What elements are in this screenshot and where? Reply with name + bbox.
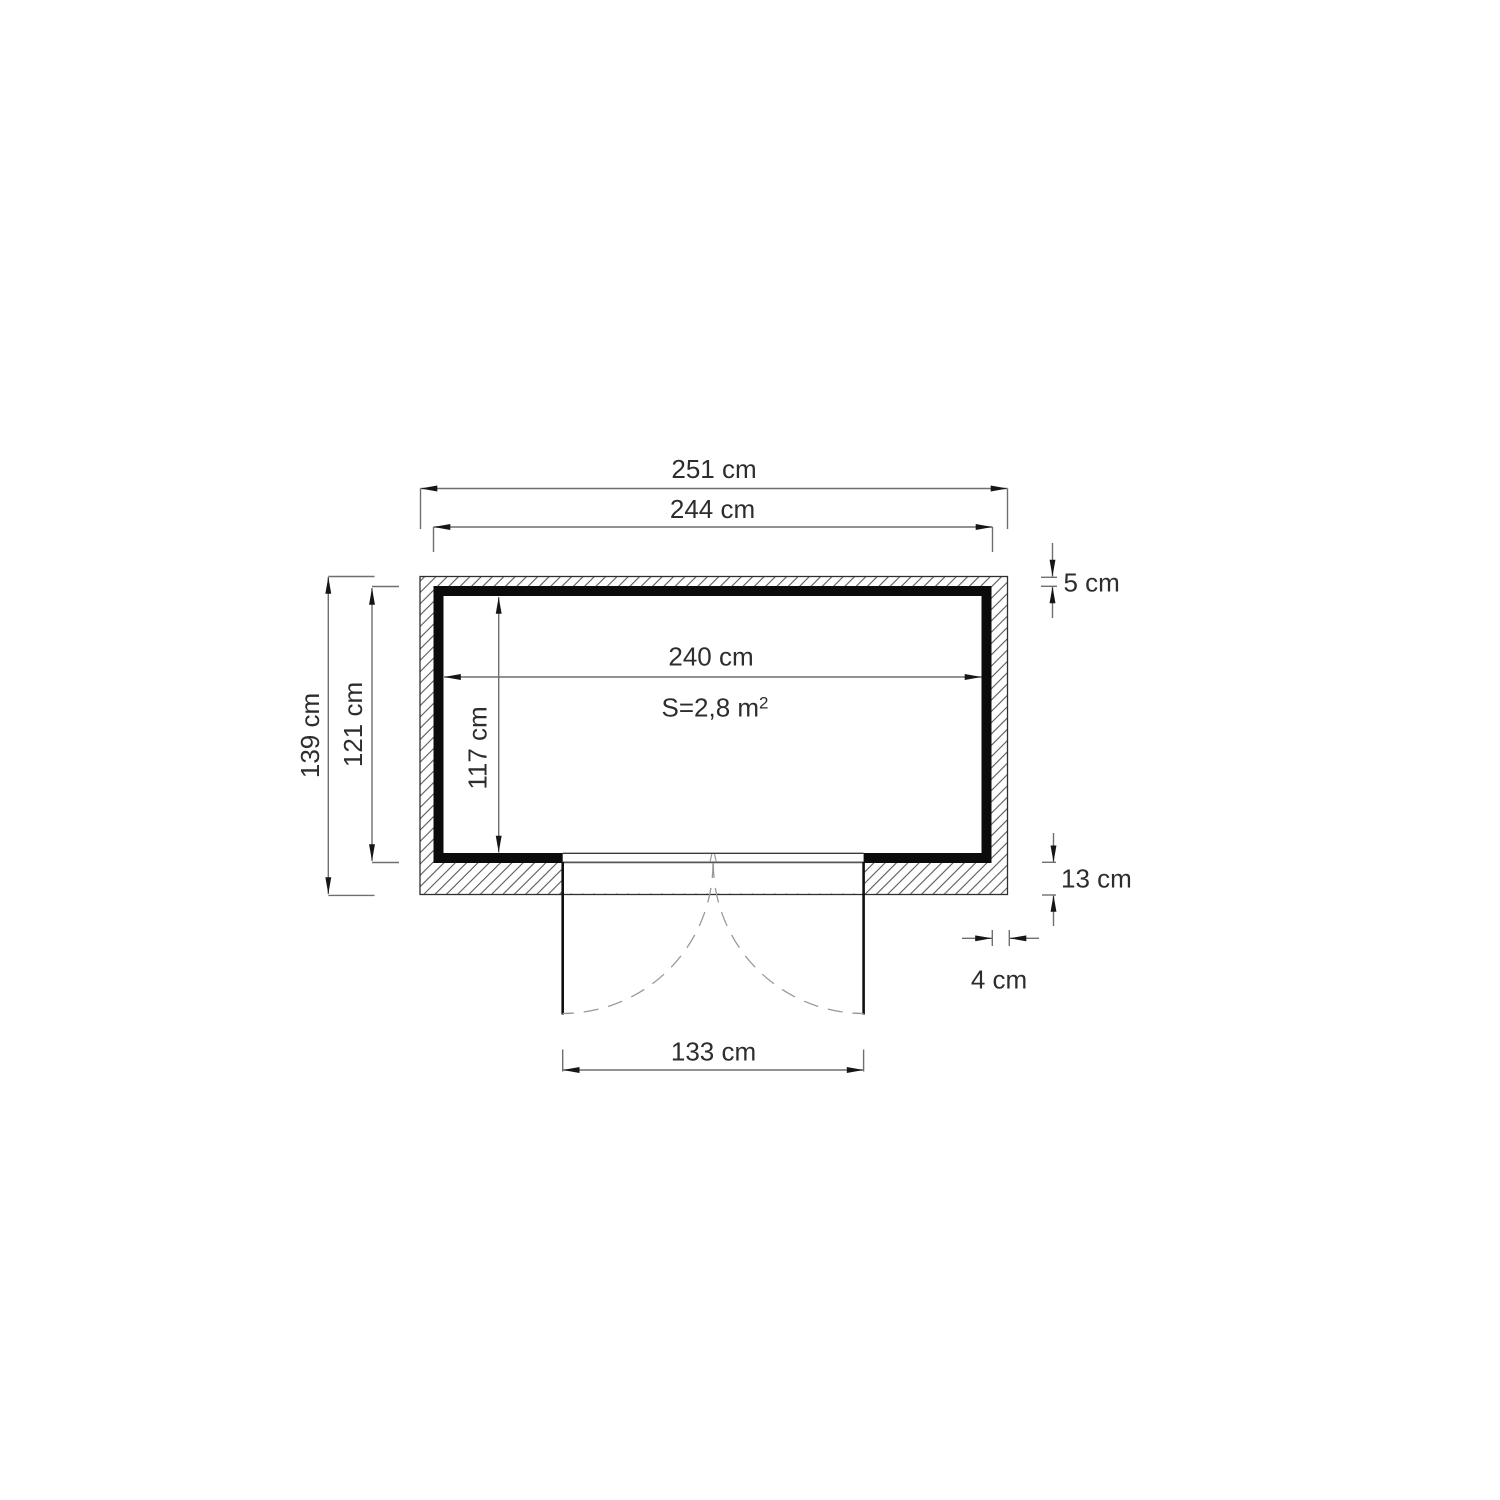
svg-text:139 cm: 139 cm bbox=[295, 693, 325, 778]
svg-text:251 cm: 251 cm bbox=[671, 454, 756, 484]
svg-text:240 cm: 240 cm bbox=[668, 642, 753, 672]
svg-text:133 cm: 133 cm bbox=[671, 1036, 756, 1066]
svg-text:S=2,8 m2: S=2,8 m2 bbox=[661, 693, 768, 723]
svg-text:13 cm: 13 cm bbox=[1061, 863, 1132, 893]
svg-text:117 cm: 117 cm bbox=[463, 706, 493, 789]
svg-text:5 cm: 5 cm bbox=[1064, 567, 1120, 597]
svg-text:244 cm: 244 cm bbox=[670, 494, 755, 524]
svg-text:121 cm: 121 cm bbox=[338, 682, 368, 767]
svg-text:4 cm: 4 cm bbox=[971, 964, 1027, 994]
